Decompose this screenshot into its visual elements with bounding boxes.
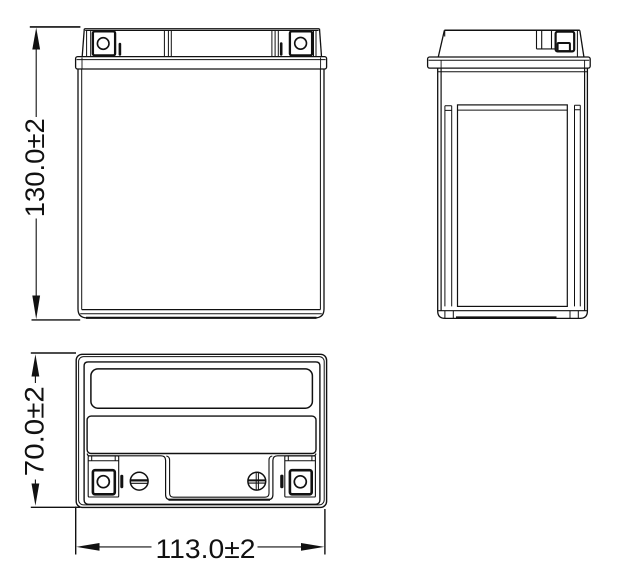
- svg-text:113.0±2: 113.0±2: [156, 534, 256, 564]
- svg-text:130.0±2: 130.0±2: [20, 118, 50, 217]
- svg-text:70.0±2: 70.0±2: [19, 386, 49, 476]
